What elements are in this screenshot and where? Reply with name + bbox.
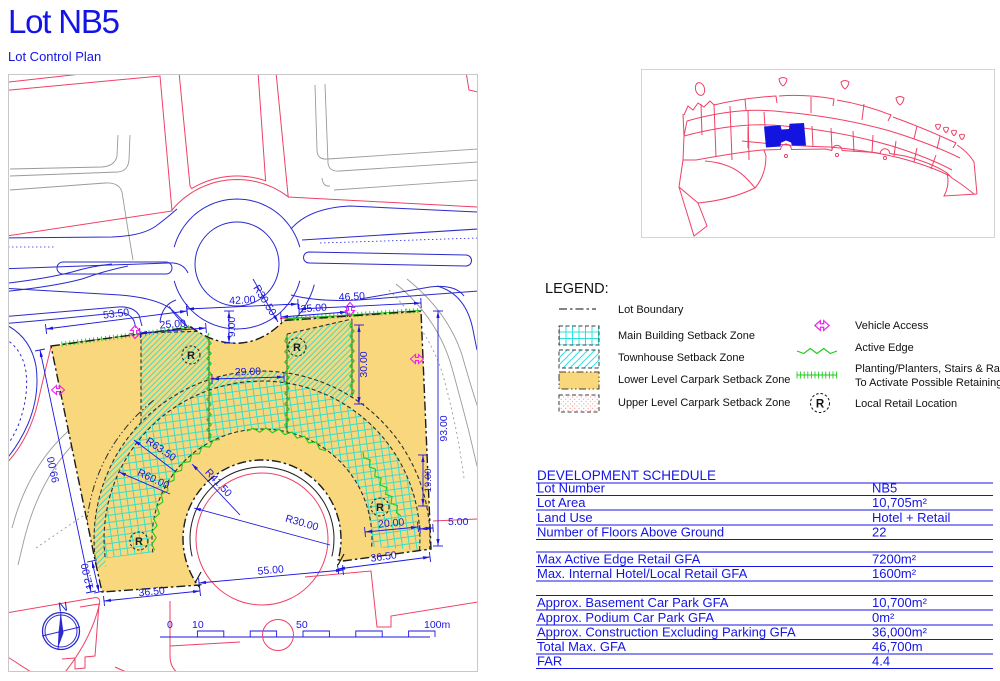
svg-text:Approx. Construction Excluding: Approx. Construction Excluding Parking G… [537, 624, 796, 639]
svg-text:42.00: 42.00 [229, 294, 256, 307]
svg-text:Local Retail Location: Local Retail Location [855, 398, 957, 410]
svg-text:Vehicle Access: Vehicle Access [855, 320, 929, 332]
svg-text:R: R [135, 536, 143, 548]
svg-text:Lower Level Carpark Setback Zo: Lower Level Carpark Setback Zone [618, 374, 790, 386]
svg-text:NB5: NB5 [872, 480, 897, 495]
svg-text:22: 22 [872, 524, 886, 539]
svg-text:Main Building Setback Zone: Main Building Setback Zone [618, 330, 755, 342]
svg-text:7200m²: 7200m² [872, 551, 917, 566]
svg-text:0m²: 0m² [872, 610, 895, 625]
svg-text:5.00: 5.00 [448, 516, 469, 528]
svg-text:Max Active Edge Retail GFA: Max Active Edge Retail GFA [537, 551, 701, 566]
svg-text:R: R [816, 399, 825, 411]
svg-text:29.00: 29.00 [235, 366, 262, 379]
svg-text:25.00: 25.00 [159, 318, 186, 332]
svg-text:Active Edge: Active Edge [855, 342, 914, 354]
svg-text:Lot Control Plan: Lot Control Plan [8, 49, 101, 64]
svg-text:4.4: 4.4 [872, 653, 890, 668]
svg-text:Total Max. GFA: Total Max. GFA [537, 639, 626, 654]
svg-text:100m: 100m [424, 619, 451, 631]
svg-text:0: 0 [167, 619, 173, 631]
svg-text:30.00: 30.00 [358, 351, 370, 377]
svg-text:Townhouse Setback Zone: Townhouse Setback Zone [618, 352, 745, 364]
svg-text:Upper Level Carpark Setback Zo: Upper Level Carpark Setback Zone [618, 397, 790, 409]
svg-text:Max. Internal Hotel/Local Reta: Max. Internal Hotel/Local Retail GFA [537, 566, 748, 581]
svg-text:36,000m²: 36,000m² [872, 624, 928, 639]
svg-text:Lot Boundary: Lot Boundary [618, 304, 684, 316]
svg-text:Planting/Planters, Stairs & Ra: Planting/Planters, Stairs & Ramps [855, 363, 1000, 375]
svg-text:46,700m: 46,700m [872, 639, 923, 654]
svg-text:Lot Area: Lot Area [537, 495, 586, 510]
svg-text:LEGEND:: LEGEND: [545, 281, 609, 297]
svg-text:Lot NB5: Lot NB5 [8, 3, 119, 40]
svg-text:Land Use: Land Use [537, 510, 593, 525]
svg-text:10: 10 [192, 619, 204, 631]
svg-text:46.50: 46.50 [338, 290, 365, 303]
svg-text:Approx. Podium Car Park GFA: Approx. Podium Car Park GFA [537, 610, 714, 625]
svg-text:R: R [376, 502, 384, 514]
svg-text:R: R [293, 342, 301, 354]
svg-text:Number of Floors Above Ground: Number of Floors Above Ground [537, 524, 724, 539]
svg-text:19.00: 19.00 [423, 469, 434, 493]
svg-text:Lot Number: Lot Number [537, 480, 606, 495]
svg-text:55.00: 55.00 [257, 563, 284, 577]
svg-text:FAR: FAR [537, 653, 562, 668]
svg-text:To Activate Possible Retaining: To Activate Possible Retaining Wall [855, 377, 1000, 389]
svg-text:93.00: 93.00 [438, 415, 450, 441]
svg-text:Hotel + Retail: Hotel + Retail [872, 510, 951, 525]
svg-text:Approx. Basement Car Park GFA: Approx. Basement Car Park GFA [537, 595, 729, 610]
svg-text:20.00: 20.00 [378, 516, 405, 530]
svg-text:R: R [187, 350, 195, 362]
svg-text:9.00: 9.00 [226, 317, 238, 338]
svg-text:50: 50 [296, 619, 308, 631]
svg-text:10,700m²: 10,700m² [872, 595, 928, 610]
svg-text:10,705m²: 10,705m² [872, 495, 928, 510]
svg-text:1600m²: 1600m² [872, 566, 917, 581]
